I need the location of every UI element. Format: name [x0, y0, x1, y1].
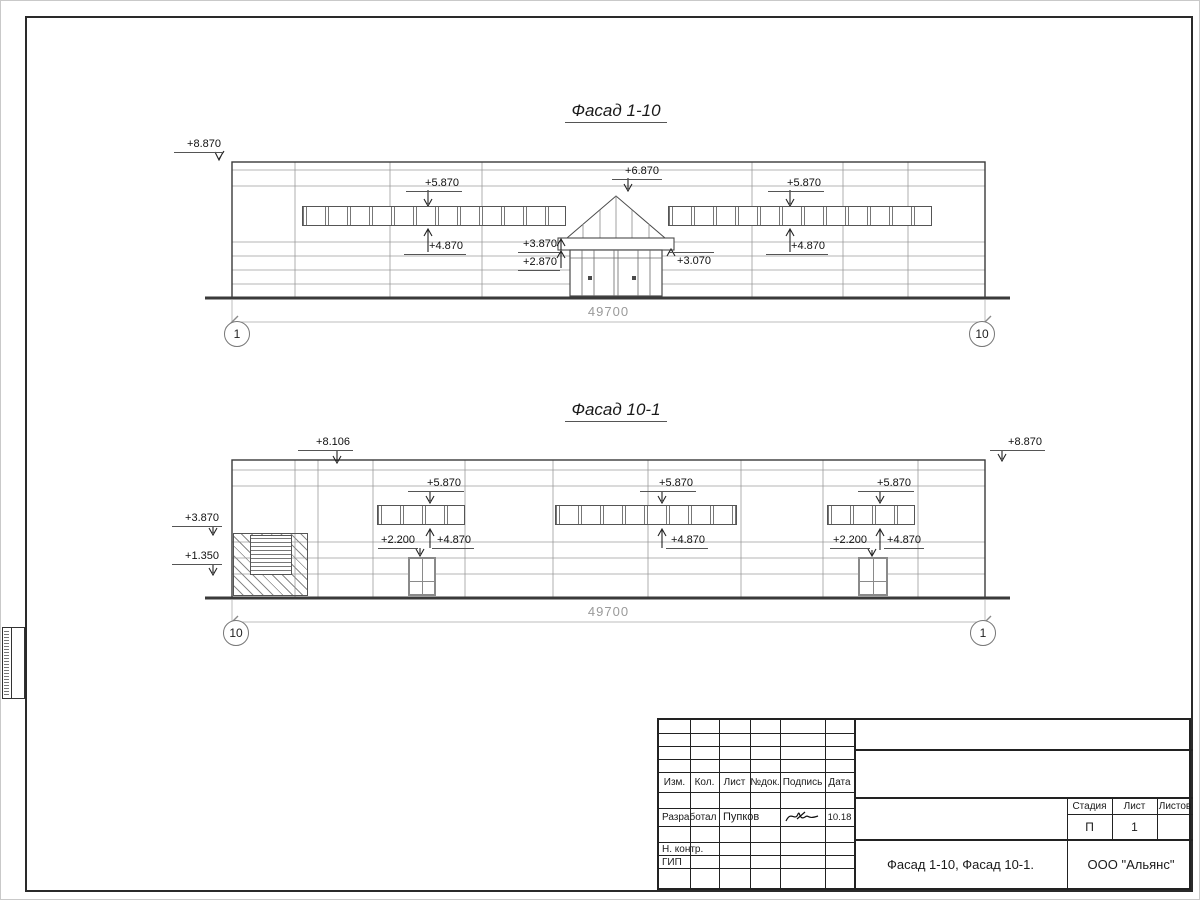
facade1-axis-circle-left: 1 — [224, 321, 250, 347]
tb-col-kol: Кол. — [690, 777, 719, 788]
elevation-mark-wall-left-lower: +1.350 — [172, 550, 222, 565]
facade2-window-band-c — [827, 505, 915, 525]
tb-stage-value: П — [1067, 820, 1112, 834]
elevation-mark-band-left-top: +5.870 — [406, 177, 462, 192]
tb-col-ndok: №док. — [750, 777, 780, 788]
elevation-mark-parapet-left: +8.106 — [298, 436, 353, 451]
tb-line — [659, 826, 854, 827]
elevation-mark-canopy-top: +3.870 — [518, 238, 560, 253]
tb-col-izm: Изм. — [659, 777, 690, 788]
facade2-axis-circle-right: 1 — [970, 620, 996, 646]
elevation-mark-band-a-top: +5.870 — [408, 477, 464, 492]
facade2-window-band-b — [555, 505, 737, 525]
tb-col-podpis: Подпись — [780, 777, 825, 788]
stamp-side-block — [2, 627, 25, 699]
elevation-mark-wall-left-upper: +3.870 — [172, 512, 222, 527]
tb-line — [854, 797, 1193, 799]
facade2-axis-circle-left: 10 — [223, 620, 249, 646]
tb-gip: ГИП — [662, 857, 682, 868]
elevation-mark-band-right-bottom: +4.870 — [766, 240, 828, 255]
facade2-door-c — [858, 557, 888, 596]
elevation-mark-parapet-right: +8.870 — [990, 436, 1045, 451]
elevation-mark-band-c-bottom: +4.870 — [884, 534, 924, 549]
tb-line — [659, 772, 854, 773]
tb-company: ООО "Альянс" — [1069, 857, 1193, 872]
elevation-mark-door-c: +2.200 — [830, 534, 870, 549]
elevation-mark-band-left-bottom: +4.870 — [404, 240, 466, 255]
facade1-window-band-right — [668, 206, 932, 226]
stamp-side-vertical-text — [4, 631, 9, 695]
facade1-axis-circle-right: 10 — [969, 321, 995, 347]
stamp-side-divider — [11, 628, 12, 698]
tb-line — [659, 808, 854, 809]
tb-line — [659, 759, 854, 760]
tb-developer-role: Разработал — [662, 812, 716, 823]
elevation-mark-canopy-right: +3.070 — [668, 252, 714, 267]
facade2-dimension-label: 49700 — [232, 604, 985, 619]
tb-line — [659, 733, 854, 734]
tb-line — [659, 868, 854, 869]
tb-col-list: Лист — [719, 777, 750, 788]
tb-sheet-value: 1 — [1112, 820, 1157, 834]
facade1-window-band-left — [302, 206, 566, 226]
facade1-dimension-label: 49700 — [232, 304, 985, 319]
tb-doc-title: Фасад 1-10, Фасад 10-1. — [856, 857, 1065, 872]
tb-stage-label: Стадия — [1067, 801, 1112, 812]
signature — [783, 809, 821, 825]
tb-date: 10.18 — [825, 812, 854, 823]
facade2-title: Фасад 10-1 — [520, 400, 712, 420]
tb-ncontr: Н. контр. — [662, 844, 703, 855]
elevation-mark-canopy-bottom: +2.870 — [518, 256, 560, 271]
elevation-mark-roof: +8.870 — [174, 138, 224, 153]
facade1-title: Фасад 1-10 — [520, 101, 712, 121]
facade1-title-text: Фасад 1-10 — [565, 101, 666, 123]
tb-line — [659, 842, 854, 843]
facade2-window-band-a — [377, 505, 465, 525]
tb-line — [854, 839, 1193, 841]
tb-line — [659, 746, 854, 747]
tb-sheet-label: Лист — [1112, 801, 1157, 812]
elevation-mark-gable: +6.870 — [612, 165, 662, 180]
elevation-mark-band-right-top: +5.870 — [768, 177, 824, 192]
tb-line — [659, 855, 854, 856]
elevation-mark-band-b-top: +5.870 — [640, 477, 696, 492]
elevation-mark-door-a: +2.200 — [378, 534, 418, 549]
tb-developer-name: Пупков — [723, 811, 759, 823]
title-block: Изм. Кол. Лист №док. Подпись Дата Разраб… — [657, 718, 1191, 890]
facade2-door-a — [408, 557, 436, 596]
tb-line — [1067, 814, 1193, 815]
drawing-sheet: Фасад 1-10 +8.870 +5.870 +4.870 +6.870 +… — [0, 0, 1200, 900]
elevation-mark-band-b-bottom: +4.870 — [666, 534, 708, 549]
tb-line — [659, 792, 854, 793]
elevation-mark-band-c-top: +5.870 — [858, 477, 914, 492]
tb-sheets-label: Листов — [1157, 801, 1193, 812]
tb-col-data: Дата — [825, 777, 854, 788]
facade2-louver-grille — [250, 535, 292, 575]
tb-line — [854, 749, 1193, 751]
elevation-mark-band-a-bottom: +4.870 — [432, 534, 474, 549]
facade2-title-text: Фасад 10-1 — [565, 400, 666, 422]
